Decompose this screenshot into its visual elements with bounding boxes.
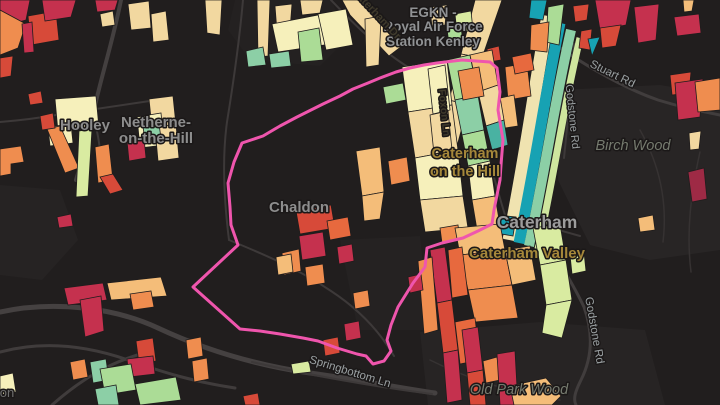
parcel-crimson	[634, 4, 659, 43]
parcel-peach	[276, 254, 293, 275]
parcel-orange	[353, 290, 370, 309]
parcel-orange	[388, 157, 410, 185]
parcel-cream	[128, 1, 151, 30]
map-canvas[interactable]: EGKN -Royal Air ForceStation KenleyHoole…	[0, 0, 720, 405]
place-label-netherne-line1: Netherne-	[121, 114, 191, 131]
parcel-mint	[95, 385, 119, 405]
place-label-netherne-line2: on-the-Hill	[119, 130, 193, 147]
airport-label-egkn-line1: EGKN -	[409, 5, 456, 20]
parcel-red	[0, 56, 13, 78]
parcel-peach	[638, 215, 655, 232]
parcel-green	[383, 83, 406, 104]
parcel-crimson	[95, 0, 118, 12]
parcel-cream	[151, 11, 169, 42]
parcel-cream	[689, 131, 701, 150]
parcel-mint	[246, 47, 266, 67]
parcel-orange	[468, 285, 518, 322]
parcel-cream	[420, 196, 468, 232]
parcel-lime	[540, 260, 572, 305]
place-label-hooley: Hooley	[60, 117, 111, 134]
parcel-deepOrange	[512, 53, 534, 74]
parcel-green	[298, 28, 323, 62]
parcel-cream	[300, 0, 323, 15]
wood-label-old-park-wood: Old Park Wood	[470, 382, 569, 398]
parcel-red	[28, 91, 43, 105]
parcel-orange	[130, 291, 154, 310]
parcel-peach	[362, 192, 384, 221]
parcel-crimson	[22, 22, 34, 53]
place-label-caterham-hill-line2: on the Hill	[430, 164, 500, 180]
parcel-cream	[205, 0, 222, 35]
place-label-chaldon: Chaldon	[269, 199, 329, 216]
parcel-mint	[269, 51, 291, 68]
parcel-orange	[305, 264, 325, 286]
parcel-crimson	[299, 232, 326, 260]
parcel-crimson	[344, 321, 361, 341]
parcel-orange	[458, 67, 484, 100]
parcel-orange	[70, 359, 88, 380]
parcel-crimson	[57, 214, 73, 228]
parcel-orange	[530, 22, 549, 52]
parcel-crimson	[337, 244, 354, 264]
wood-label-birch-wood: Birch Wood	[596, 138, 672, 154]
parcel-peach	[683, 0, 694, 12]
place-label-caterham-hill-line1: Caterham	[432, 146, 499, 162]
choropleth-map[interactable]: EGKN -Royal Air ForceStation KenleyHoole…	[0, 0, 720, 405]
place-label-partial-on: on	[0, 385, 14, 400]
parcel-deepOrange	[327, 217, 351, 240]
parcel-orange	[192, 358, 209, 382]
parcel-red	[40, 113, 55, 130]
parcel-cream	[100, 11, 115, 27]
place-label-caterham-valley: Caterham Valley	[469, 245, 586, 262]
map-screenshot: EGKN -Royal Air ForceStation KenleyHoole…	[0, 0, 720, 405]
place-label-caterham: Caterham	[497, 212, 578, 232]
parcel-crimson	[674, 14, 701, 36]
parcel-orange	[695, 78, 720, 112]
parcel-red	[573, 4, 589, 22]
parcel-orange	[186, 337, 203, 359]
